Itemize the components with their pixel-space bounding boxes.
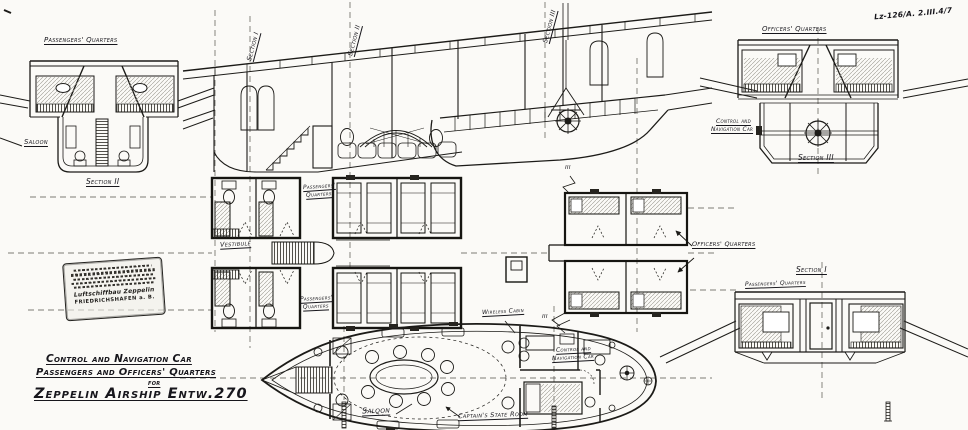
label-marker-iii-bottom: III — [542, 315, 548, 321]
ships-wheel-icon — [804, 119, 832, 147]
label-passengers-quarters-section2: Passengers' Quarters — [44, 37, 117, 44]
manufacturer-stamp: Luftschiffbau Zeppelin FRIEDRICHSHAFEN a… — [62, 257, 166, 322]
section-i-cross-section — [660, 292, 968, 421]
plan-officers-quarters — [549, 176, 694, 326]
label-section-iii-title: Section III — [798, 154, 834, 162]
label-control-nav-car-line2: Navigation Car — [711, 127, 753, 133]
vent-box — [506, 257, 527, 282]
label-plan-passengers2-line2: Quarters — [303, 303, 329, 311]
label-plan-officers-quarters: Officers' Quarters — [692, 241, 755, 248]
label-section-i-title: Section I — [796, 266, 827, 274]
title-line-2: Passengers and Officers' Quarters — [36, 368, 216, 379]
section-ii-cross-section — [0, 10, 214, 172]
label-control-nav-car-line1: Control and — [716, 119, 751, 125]
elevator-wheel-icon — [620, 366, 634, 380]
label-marker-iii-top: III — [565, 166, 571, 172]
title-line-4: Zeppelin Airship Entw.270 — [34, 387, 248, 402]
blueprint-sheet: Passengers' Quarters Saloon Section II S… — [0, 0, 968, 430]
blueprint-linework — [0, 0, 968, 430]
plan-passenger-quarters — [212, 175, 461, 331]
section-iii-cross-section — [700, 40, 968, 163]
ships-wheel-icon — [555, 108, 581, 134]
title-line-1: Control and Navigation Car — [46, 354, 192, 365]
label-saloon-section2: Saloon — [24, 139, 48, 146]
label-vestibule: Vestibule — [220, 240, 251, 248]
label-section-ii-title: Section II — [86, 178, 119, 186]
side-elevation — [183, 3, 712, 172]
label-officers-quarters-section3: Officers' Quarters — [762, 26, 827, 33]
label-saloon-plan: Saloon — [362, 407, 390, 416]
